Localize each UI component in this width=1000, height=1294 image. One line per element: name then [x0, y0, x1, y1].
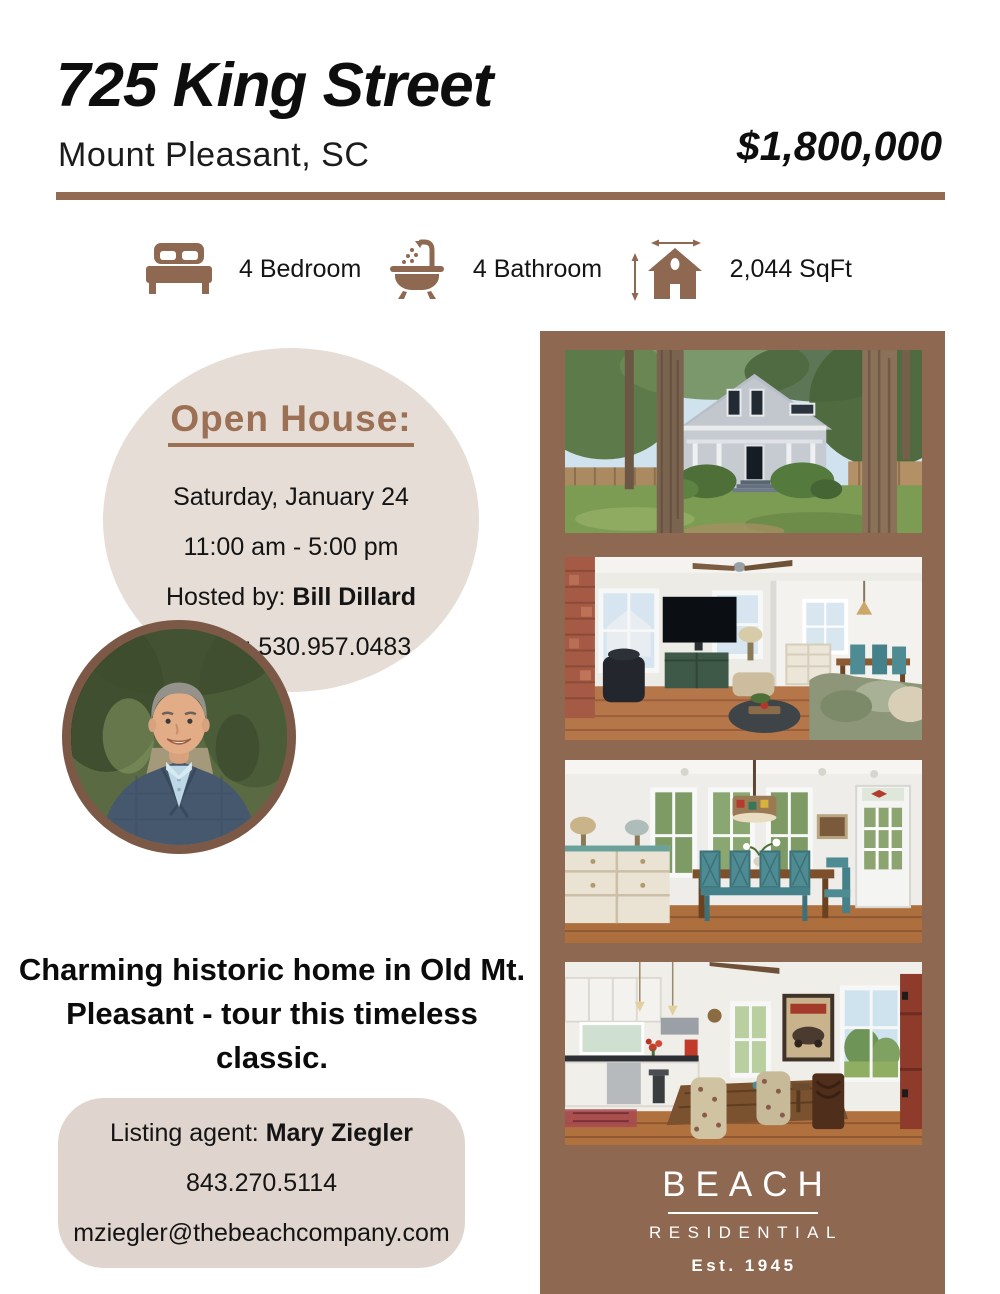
photo-panel: BEACH RESIDENTIAL Est. 1945 [540, 331, 945, 1294]
brand-division: RESIDENTIAL [642, 1223, 843, 1243]
photo-dining-room-illustration [565, 760, 922, 943]
brand-established: Est. 1945 [688, 1256, 796, 1276]
bathtub-icon [388, 237, 446, 301]
brand-logo-divider [668, 1212, 818, 1214]
brand-logo: BEACH RESIDENTIAL Est. 1945 [540, 1165, 945, 1276]
brand-name: BEACH [652, 1165, 833, 1205]
photo-living-room-illustration [565, 557, 922, 740]
open-house-time: 11:00 am - 5:00 pm [184, 533, 399, 562]
listing-agent-name: Mary Ziegler [266, 1119, 413, 1147]
bed-icon [146, 243, 212, 295]
photo-kitchen [565, 962, 922, 1145]
feature-bathrooms: 4 Bathroom [388, 237, 602, 301]
feature-sqft: 2,044 SqFt [629, 237, 852, 301]
bathroom-count-label: 4 Bathroom [473, 255, 602, 284]
listing-agent-card: Listing agent: Mary Ziegler 843.270.5114… [58, 1098, 465, 1268]
photo-dining-room [565, 760, 922, 943]
photo-kitchen-illustration [565, 962, 922, 1145]
listing-agent-email: mziegler@thebeachcompany.com [73, 1219, 449, 1248]
header-divider [56, 192, 945, 200]
sqft-label: 2,044 SqFt [730, 255, 852, 284]
photo-living-room [565, 557, 922, 740]
page-title: 725 King Street [56, 50, 492, 121]
listing-agent-phone: 843.270.5114 [186, 1169, 337, 1198]
listing-agent-name-line: Listing agent: Mary Ziegler [110, 1119, 413, 1148]
open-house-heading: Open House: [168, 398, 413, 447]
photo-exterior [565, 350, 922, 533]
bedroom-count-label: 4 Bedroom [239, 255, 361, 284]
agent-portrait [62, 620, 296, 854]
agent-portrait-illustration [71, 629, 287, 845]
open-house-date: Saturday, January 24 [173, 483, 409, 512]
mobile-number: 530.957.0483 [258, 633, 411, 661]
open-house-host: Hosted by: Bill Dillard [166, 583, 416, 612]
listing-price: $1,800,000 [737, 123, 942, 170]
feature-bedrooms: 4 Bedroom [146, 243, 361, 295]
tagline: Charming historic home in Old Mt. Pleasa… [18, 948, 526, 1080]
sqft-house-icon [629, 237, 703, 301]
host-name: Bill Dillard [292, 583, 416, 611]
photo-exterior-illustration [565, 350, 922, 533]
feature-row: 4 Bedroom 4 Bathroom [146, 236, 852, 302]
page-subtitle: Mount Pleasant, SC [58, 136, 369, 175]
